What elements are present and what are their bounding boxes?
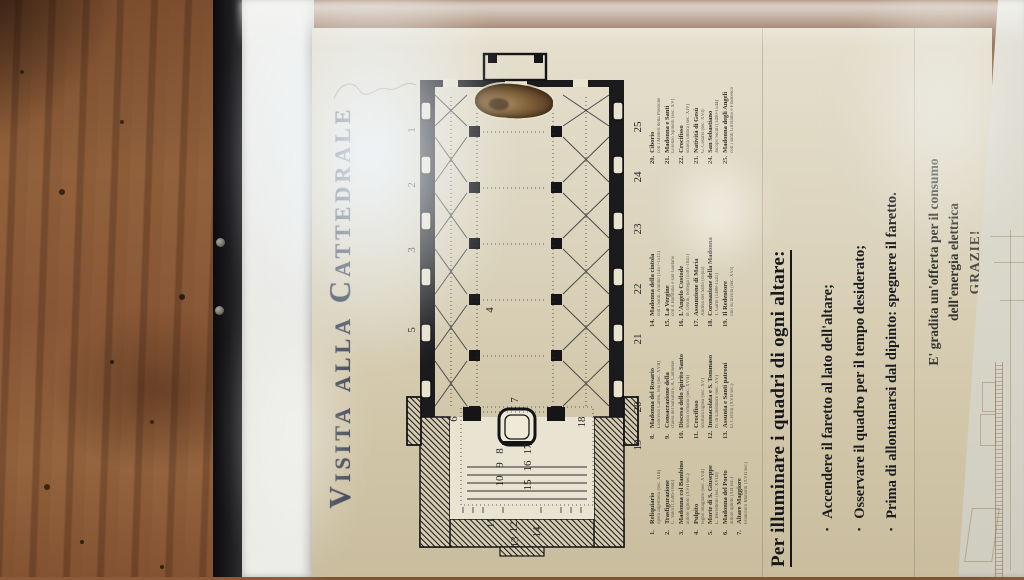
legend-item-sub: autore ignoto (XII sec.) — [730, 470, 735, 524]
legend-item-number: 1. — [650, 527, 662, 535]
legend-item-number: 7. — [737, 527, 749, 535]
legend-item-sub: N. di Liberatore (sec. XV) — [715, 355, 720, 428]
legend-item: 6.Madonna del Portoautore ignoto (XII se… — [723, 443, 735, 535]
chapel-altar — [421, 268, 431, 286]
legend-item-number: 3. — [679, 527, 691, 535]
sketch-scale-bar — [995, 362, 1003, 577]
plan-number: 12 — [508, 522, 520, 533]
wood-table — [0, 0, 215, 577]
legend-item: 16.L'Angelo CustodeB. Orsini, bottega (1… — [679, 209, 691, 327]
legend-item-label: Discesa dello Spirito Santo — [679, 354, 686, 428]
legend-item-label: Madonna degli Angeli — [723, 87, 730, 153]
legend-item-number: 19. — [723, 319, 735, 327]
legend-item-label: Il Redentore — [723, 267, 730, 316]
legend-item-sub: olio su tavola (sec. XVI) — [730, 267, 735, 316]
offering-line: E' gradita un'offerta per il consumo — [924, 105, 944, 419]
legend-item: 24.San SebastianoJacopo Siculi (1490-154… — [708, 44, 720, 164]
plan-number: 3 — [406, 247, 418, 253]
legend-item-label: Immacolata e S. Tommaso — [708, 355, 715, 428]
instructions-heading: Per illuminare i quadri di ogni altare: — [768, 32, 790, 567]
chapel-altar — [613, 380, 623, 398]
legend-item: 2.TrasfigurazioneC. Valori (1586-1660) — [665, 443, 677, 535]
legend-item-label: Madonna della cintola — [650, 251, 657, 316]
plan-number: 22 — [632, 284, 644, 295]
legend-item-label: Consacrazione della — [665, 361, 672, 428]
legend-item-label: L'Angelo Custode — [679, 254, 686, 316]
legend-item-sub: legno intagliato (sec. XVII) — [701, 469, 706, 524]
sketch-line — [1000, 300, 1024, 301]
legend-item: 8.Madonna del RosarioLodovico Carosi, te… — [650, 331, 662, 439]
screw — [216, 238, 225, 247]
plan-number: 13 — [509, 536, 521, 548]
legend-item-sub: scultura lignea (sec. XV) — [701, 378, 706, 428]
legend-item: 4.Pulpitolegno intagliato (sec. XVII) — [694, 443, 706, 535]
legend-item-number: 2. — [665, 527, 677, 535]
legend-item-sub: G. Cesarei (sec. XVI) — [701, 108, 706, 153]
legend-item-sub: D. Cerrini (XVII sec.) — [730, 363, 735, 428]
chapel-altar — [421, 324, 431, 342]
legend-item-number: 11. — [694, 431, 706, 439]
chapel-altar — [613, 324, 623, 342]
plan-number: 9 — [494, 462, 506, 468]
legend-item-number: 18. — [708, 319, 720, 327]
offering-line: dell'energia elettrica — [944, 105, 964, 419]
plan-number: 16 — [522, 460, 534, 472]
legend-item: 1.Reliquiarioopera argentiera (sec. XIII… — [650, 443, 662, 535]
legend-item-label: Natività di Gesù — [694, 108, 701, 153]
legend-item-number: 9. — [665, 431, 677, 439]
legend-item-sub: Francesco Manardi (XVII sec.) — [744, 462, 749, 524]
legend-item-number: 4. — [694, 527, 706, 535]
legend-item: 3.Madonna col Bambinoautore ignoto (XVII… — [679, 443, 691, 535]
legend-column: 20.Ciboriocon i Misteri della Passione21… — [650, 44, 737, 164]
legend-item-number: 21. — [665, 156, 677, 164]
legend-item: 12.Immacolata e S. TommasoN. di Liberato… — [708, 331, 720, 439]
paper-seam — [914, 28, 915, 577]
legend-item-number: 13. — [723, 431, 735, 439]
legend-item-sub: con il Bambino e san Gaetano — [671, 256, 676, 316]
plan-number: 14 — [531, 526, 543, 538]
legend-item-number: 22. — [679, 156, 691, 164]
legend-item-label: Morte di S. Giuseppe — [708, 465, 715, 524]
legend-item-label: San Sebastiano — [708, 100, 715, 153]
legend-item-label: Assunta e Santi patroni — [723, 363, 730, 428]
legend-item-sub: autore ignoto (XVII sec.) — [686, 461, 691, 524]
sketch-line — [994, 262, 1024, 263]
legend-item-number: 12. — [708, 431, 720, 439]
legend-item: 7.Altare MaggioreFrancesco Manardi (XVII… — [737, 443, 749, 535]
plan-number: 1 — [406, 127, 418, 133]
frame-mat — [242, 0, 314, 577]
legend-item-sub: opera argentiera (sec. XIII) — [657, 470, 662, 524]
legend-item-sub: T. Garbi (1488-1541) — [715, 237, 720, 316]
chapel-altar — [613, 268, 623, 286]
legend-item-sub: con i santi Girolamo e Francesco — [730, 87, 735, 153]
legend-item: 21.Madonna e SantiLorenzo Spinelli (sec.… — [665, 44, 677, 164]
legend-item-sub: Andrea del Sarto (copia) — [701, 258, 706, 315]
chapel-altar — [613, 212, 623, 230]
legend-item-label: Altare Maggiore — [737, 462, 744, 524]
legend-item-sub: scuola umbra (sec. XIV) — [686, 104, 691, 153]
legend-item: 10.Discesa dello Spirito Santoscuola rom… — [679, 331, 691, 439]
plan-number: 7 — [509, 397, 521, 403]
legend-item-label: Madonna col Bambino — [679, 461, 686, 524]
cathedral-poster: Visita alla Cattedrale — [312, 28, 992, 577]
chapel-altar — [613, 156, 623, 174]
plan-number: 24 — [632, 171, 644, 183]
plan-number: 8 — [494, 448, 506, 454]
legend-item-number: 10. — [679, 431, 691, 439]
chapel-altar — [421, 212, 431, 230]
legend-item-sub: B. Orsini, bottega (1581-1641) — [686, 254, 691, 316]
sketch-line — [990, 236, 1024, 237]
legend-item-number: 24. — [708, 156, 720, 164]
plan-number: 21 — [632, 334, 644, 345]
legend-item-label: Madonna del Porto — [723, 470, 730, 524]
legend-item: 11.Crocifissoscultura lignea (sec. XV) — [694, 331, 706, 439]
legend-item-label: Crocifisso — [694, 378, 701, 428]
legend-item-number: 23. — [694, 156, 706, 164]
legend-item-label: Crocifisso — [679, 104, 686, 153]
plan-number: 20 — [632, 401, 644, 413]
sketch-shape — [980, 414, 996, 446]
legend-item: 22.Crocifissoscuola umbra (sec. XIV) — [679, 44, 691, 164]
plan-number: 4 — [484, 307, 496, 313]
plan-number: 10 — [494, 475, 506, 487]
legend-item-number: 14. — [650, 319, 662, 327]
legend-item: 18.Coronazione della MadonnaT. Garbi (14… — [708, 209, 720, 327]
legend-item: 14.Madonna della cintolacon i Santi. Alu… — [650, 209, 662, 327]
legend-item: 5.Morte di S. GiuseppeL. Berrettoni (sec… — [708, 443, 720, 535]
legend-item: 20.Ciboriocon i Misteri della Passione — [650, 44, 662, 164]
wood-speck — [20, 70, 24, 74]
chapel-altar — [421, 102, 431, 120]
legend-item-sub: L. Berrettoni (sec. XVIII) — [715, 465, 720, 524]
legend-item-sub: C. Valori (1586-1660) — [671, 480, 676, 524]
plan-number: 17 — [522, 443, 534, 455]
plan-number: 19 — [632, 439, 644, 451]
legend-item-number: 17. — [694, 319, 706, 327]
legend-item: 23.Natività di GesùG. Cesarei (sec. XVI) — [694, 44, 706, 164]
poster-title: Visita alla Cattedrale — [322, 87, 358, 527]
instruction-bullet: Osservare il quadro per il tempo desider… — [852, 61, 869, 531]
legend-item-number: 8. — [650, 431, 662, 439]
legend-item: 13.Assunta e Santi patroniD. Cerrini (XV… — [723, 331, 735, 439]
plan-number: 6 — [448, 416, 460, 422]
plan-number: 18 — [576, 416, 588, 428]
plan-number: 2 — [406, 182, 418, 188]
legend-column: 8.Madonna del RosarioLodovico Carosi, te… — [650, 331, 737, 439]
legend-item-sub: Jacopo Siculi (1490-1544) — [715, 100, 720, 153]
chapel-altar — [421, 156, 431, 174]
church-floor-plan: 1235467891015161711121314181920212223242… — [405, 45, 649, 557]
legend-item-label: Assunzione di Maria — [694, 258, 701, 315]
altar-legend: 1.Reliquiarioopera argentiera (sec. XIII… — [650, 28, 750, 577]
legend-item: 17.Assunzione di MariaAndrea del Sarto (… — [694, 209, 706, 327]
legend-item-label: Ciborio — [650, 98, 657, 153]
legend-item-number: 20. — [650, 156, 662, 164]
legend-item-label: Pulpito — [694, 469, 701, 524]
plan-number: 15 — [522, 479, 534, 491]
sketch-shape — [982, 382, 996, 412]
legend-item-label: Coronazione della Madonna — [708, 237, 715, 316]
plan-number: 25 — [632, 121, 644, 133]
legend-item-number: 16. — [679, 319, 691, 327]
legend-column: 1.Reliquiarioopera argentiera (sec. XIII… — [650, 443, 752, 535]
legend-item-label: Reliquiario — [650, 470, 657, 524]
legend-item-label: Trasfigurazione — [665, 480, 672, 524]
legend-item-number: 5. — [708, 527, 720, 535]
paper-seam — [762, 28, 763, 577]
plan-number: 23 — [632, 223, 644, 235]
legend-item-label: La Vergine — [665, 256, 672, 316]
plan-number: 11 — [485, 518, 497, 529]
instruction-bullet: Accendere il faretto al lato dell'altare… — [820, 61, 837, 531]
legend-item-number: 15. — [665, 319, 677, 327]
sketch-line — [1010, 230, 1011, 570]
instruction-bullet: Prima di allontanarsi dal dipinto: spegn… — [884, 61, 901, 531]
legend-item-number: 6. — [723, 527, 735, 535]
legend-item-label: Madonna e Santi — [665, 99, 672, 153]
chapel-altar — [421, 380, 431, 398]
legend-item-sub: Lodovico Carosi, tela (sec. XVII) — [657, 361, 662, 428]
legend-item: 9.Consacrazione dellachiesa del Salvator… — [665, 331, 677, 439]
screw — [215, 306, 224, 315]
legend-item: 19.Il Redentoreolio su tavola (sec. XVI) — [723, 209, 735, 327]
chapel-altar — [613, 102, 623, 120]
legend-item-sub: con i Santi. Alunno (1457-1511) — [657, 251, 662, 316]
legend-item-label: Madonna del Rosario — [650, 361, 657, 428]
legend-item: 25.Madonna degli Angelicon i santi Girol… — [723, 44, 735, 164]
legend-item-sub: scuola romana (sec. XVII) — [686, 354, 691, 428]
frame-edge — [213, 0, 242, 577]
legend-item-sub: Lorenzo Spinelli (sec. XV) — [671, 99, 676, 153]
legend-item: 15.La Verginecon il Bambino e san Gaetan… — [665, 209, 677, 327]
plan-number: 5 — [406, 327, 418, 333]
legend-item-number: 25. — [723, 156, 735, 164]
legend-item-sub: chiesa del Salvatore, A. Camassei — [671, 361, 676, 428]
legend-column: 14.Madonna della cintolacon i Santi. Alu… — [650, 209, 737, 327]
legend-item-sub: con i Misteri della Passione — [657, 98, 662, 153]
